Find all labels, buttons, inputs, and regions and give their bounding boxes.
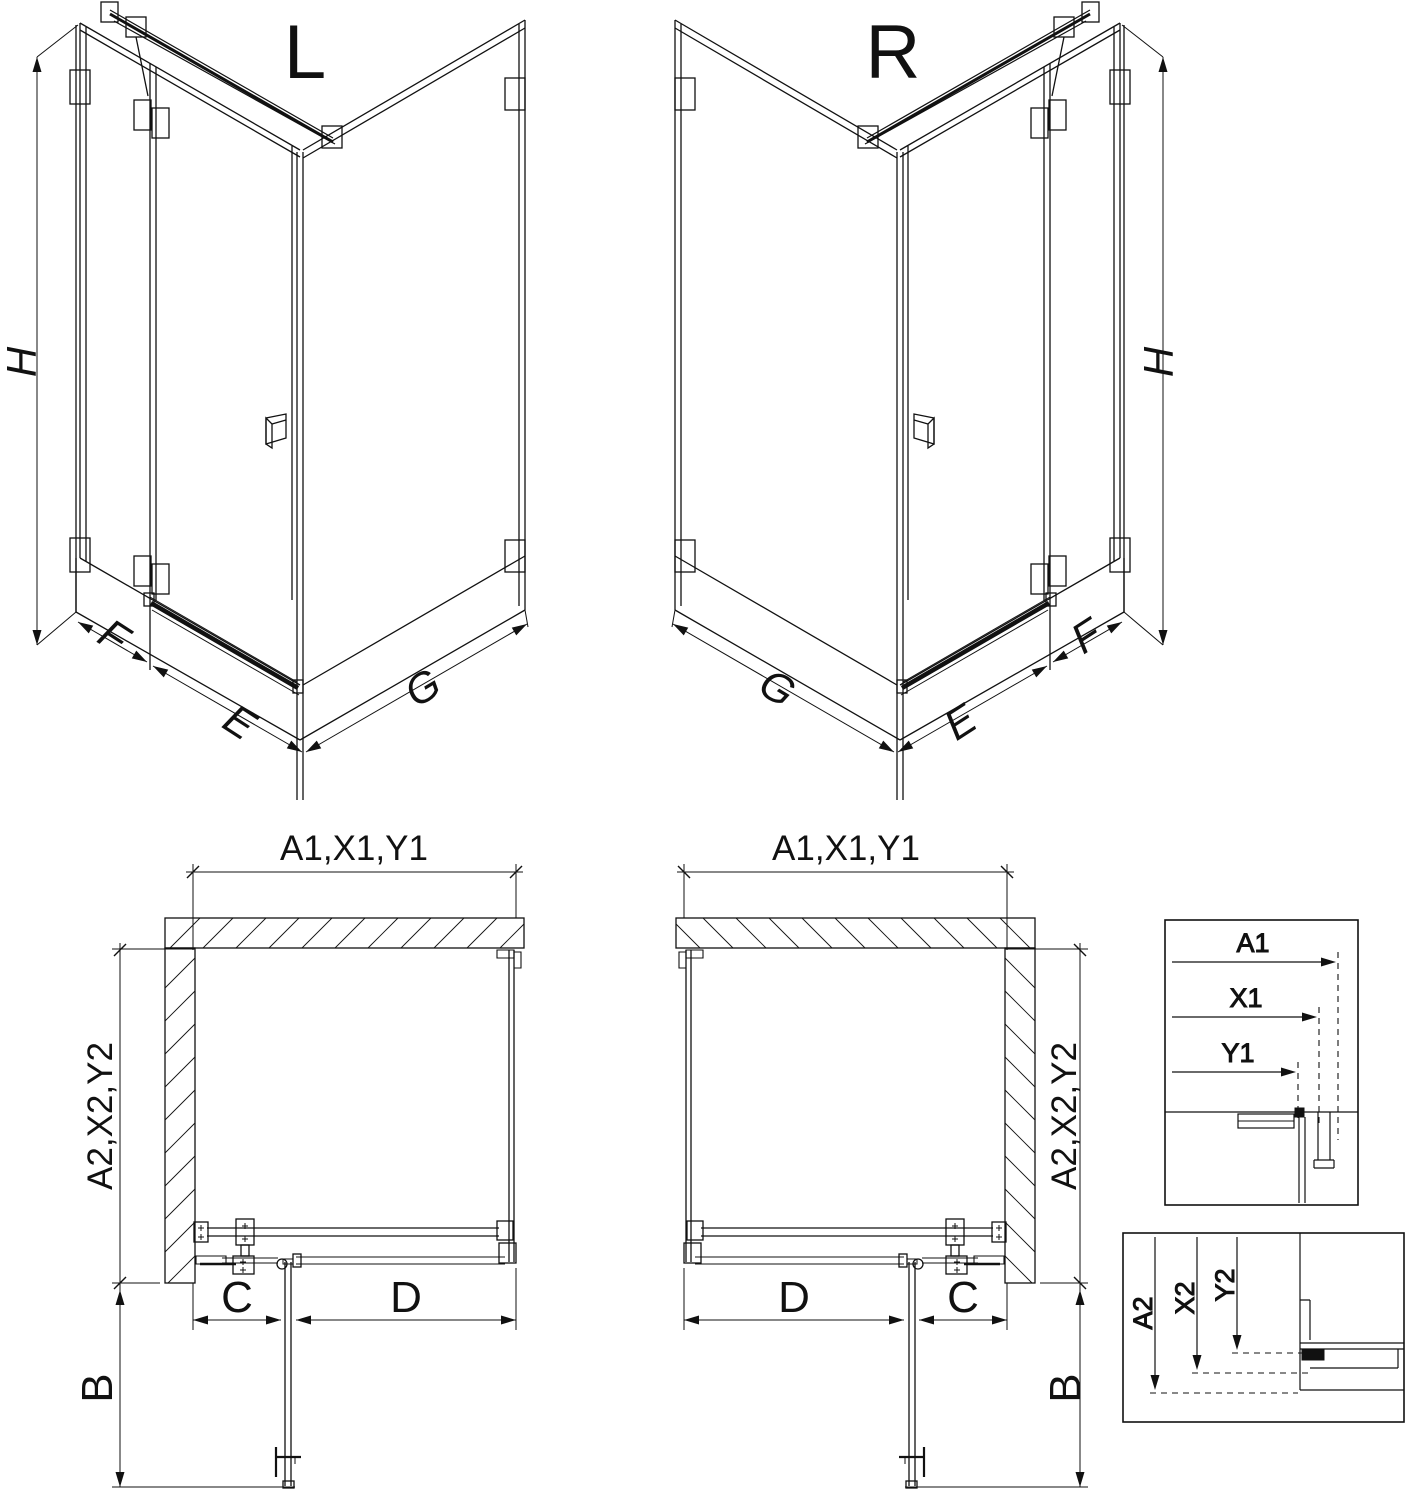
- detail-box-horizontal: A1 X1 Y1: [1165, 920, 1358, 1205]
- plan-left-lineart: [112, 864, 524, 1488]
- detail-x2-label: X2: [1170, 1281, 1200, 1314]
- plan-right-dim-width: A1,X1,Y1: [772, 829, 920, 868]
- detail-box-vertical: A2 X2 Y2: [1123, 1233, 1404, 1422]
- plan-left-dim-depth: A2,X2,Y2: [81, 1042, 120, 1190]
- plan-right-lineart: [676, 864, 1088, 1488]
- detail-y1-label: Y1: [1221, 1038, 1254, 1068]
- plan-left-dim-b: B: [73, 1373, 122, 1402]
- technical-drawing: L H F E G R H F E G A1,X1,Y1 A2,X2,Y2 B …: [0, 0, 1416, 1499]
- iso-right-lineart: [671, 2, 1168, 800]
- iso-left-dim-height: H: [0, 346, 45, 377]
- iso-right-dim-g: G: [751, 659, 803, 716]
- plan-left-dim-width: A1,X1,Y1: [280, 829, 428, 868]
- iso-view-left: L H F E G: [0, 2, 529, 800]
- plan-right-dim-depth: A2,X2,Y2: [1045, 1042, 1084, 1190]
- detail-a1-label: A1: [1236, 928, 1269, 958]
- iso-right-dim-f: F: [1063, 608, 1112, 663]
- plan-right-dim-c: C: [947, 1273, 979, 1322]
- iso-view-right: R H F E G: [671, 2, 1182, 800]
- iso-left-dim-g: G: [396, 659, 448, 716]
- detail-y2-label: Y2: [1210, 1268, 1240, 1301]
- plan-view-left: A1,X1,Y1 A2,X2,Y2 B C D: [73, 829, 524, 1488]
- plan-right-dim-b: B: [1041, 1373, 1090, 1402]
- iso-right-title: R: [866, 10, 921, 95]
- plan-right-dim-d: D: [778, 1273, 810, 1322]
- iso-right-dim-e: E: [936, 694, 986, 749]
- drawing-canvas: L H F E G R H F E G A1,X1,Y1 A2,X2,Y2 B …: [0, 0, 1416, 1499]
- plan-left-dim-d: D: [390, 1273, 422, 1322]
- detail-a2-label: A2: [1128, 1296, 1158, 1329]
- iso-right-dim-height: H: [1135, 346, 1182, 377]
- iso-left-title: L: [284, 10, 326, 95]
- iso-left-lineart: [33, 2, 530, 800]
- detail-x1-label: X1: [1229, 983, 1262, 1013]
- plan-left-dim-c: C: [221, 1273, 253, 1322]
- iso-left-dim-f: F: [90, 609, 139, 664]
- iso-left-dim-e: E: [215, 695, 265, 750]
- plan-view-right: A1,X1,Y1 A2,X2,Y2 B C D: [676, 829, 1090, 1488]
